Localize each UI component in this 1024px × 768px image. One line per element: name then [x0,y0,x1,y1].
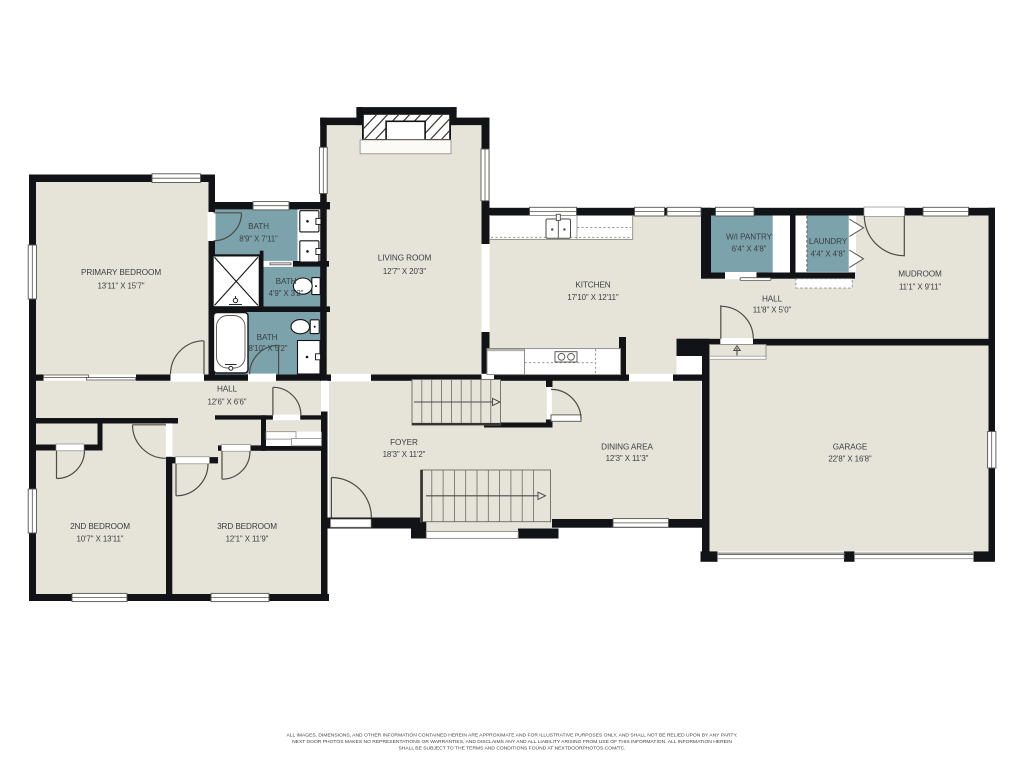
svg-text:SHALL BE SUBJECT TO THE TERMS: SHALL BE SUBJECT TO THE TERMS AND CONDIT… [398,746,625,752]
svg-text:4'4" X 4'8": 4'4" X 4'8" [811,250,846,259]
svg-text:8'10" X 5'2": 8'10" X 5'2" [248,344,287,353]
svg-text:18'3" X 11'2": 18'3" X 11'2" [383,450,426,459]
svg-text:4'9" X 3'2": 4'9" X 3'2" [269,289,304,298]
svg-text:BATH: BATH [276,277,297,286]
svg-text:12'6" X 6'6": 12'6" X 6'6" [207,398,246,407]
svg-text:8'9" X 7'11": 8'9" X 7'11" [239,235,278,244]
svg-text:13'11" X 15'7": 13'11" X 15'7" [98,282,145,291]
svg-text:DINING AREA: DINING AREA [601,443,653,452]
svg-text:ALL IMAGES, DIMENSIONS, AND OT: ALL IMAGES, DIMENSIONS, AND OTHER INFORM… [287,733,738,739]
svg-text:10'7" X 13'11": 10'7" X 13'11" [77,535,124,544]
svg-text:NEXT DOOR PHOTOS MAKES NO REPR: NEXT DOOR PHOTOS MAKES NO REPRESENTATION… [292,739,732,745]
svg-text:KITCHEN: KITCHEN [575,281,610,290]
svg-text:MUDROOM: MUDROOM [898,270,942,279]
svg-text:22'8" X 16'8": 22'8" X 16'8" [828,455,872,464]
svg-text:6'4" X 4'8": 6'4" X 4'8" [732,245,767,254]
svg-text:HALL: HALL [217,385,238,394]
svg-text:BATH: BATH [248,222,269,231]
svg-text:LAUNDRY: LAUNDRY [809,237,848,246]
svg-text:11'1" X 9'11": 11'1" X 9'11" [899,283,941,292]
svg-text:12'1" X 11'9": 12'1" X 11'9" [226,535,269,544]
svg-text:12'7" X 20'3": 12'7" X 20'3" [383,267,427,276]
svg-text:17'10" X 12'11": 17'10" X 12'11" [567,293,619,302]
svg-text:12'3" X 11'3": 12'3" X 11'3" [606,454,649,463]
svg-text:PRIMARY BEDROOM: PRIMARY BEDROOM [81,268,161,277]
svg-text:11'8" X 5'0": 11'8" X 5'0" [753,306,792,315]
svg-text:FOYER: FOYER [390,438,418,447]
svg-text:3RD BEDROOM: 3RD BEDROOM [217,522,277,531]
svg-text:BATH: BATH [257,333,278,342]
svg-text:LIVING ROOM: LIVING ROOM [378,254,432,263]
svg-text:2ND BEDROOM: 2ND BEDROOM [70,522,130,531]
svg-text:HALL: HALL [762,295,783,304]
svg-text:W/I PANTRY: W/I PANTRY [726,233,773,242]
svg-text:GARAGE: GARAGE [833,443,868,452]
